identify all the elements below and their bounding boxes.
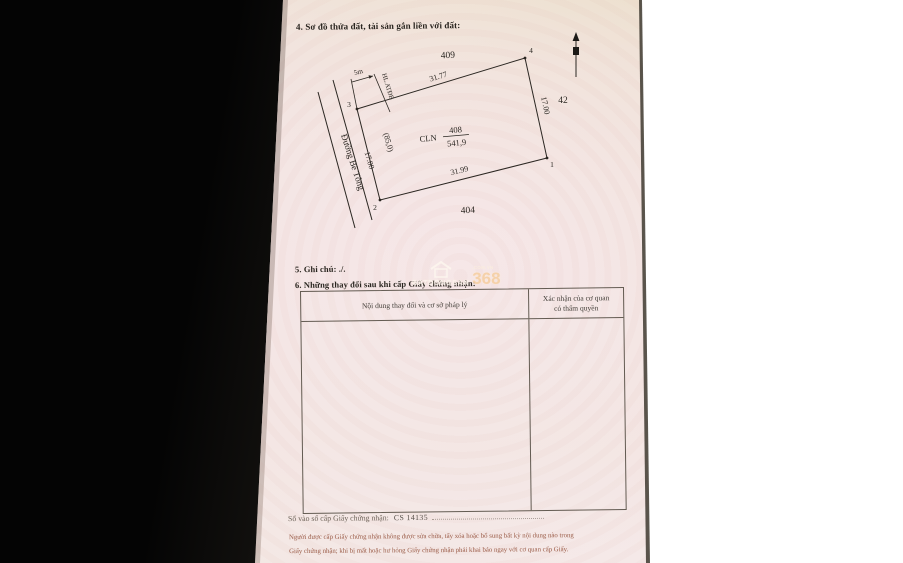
dim-arrowhead	[369, 75, 374, 79]
registry-number-label: Số vào sổ cấp Giấy chứng nhận:	[288, 513, 389, 523]
edge-left-corridor-length: (85,0)	[381, 132, 395, 153]
corner-label-1: 1	[550, 160, 554, 169]
corner-label-3: 3	[347, 100, 351, 109]
legal-notice: Người được cấp Giấy chứng nhận không đượ…	[289, 529, 615, 558]
dim-5m-label: 5m	[353, 67, 364, 77]
edge-top-length: 31.77	[428, 70, 448, 84]
changes-table-col1-header-cell: Nội dung thay đổi và cơ sở pháp lý	[301, 289, 529, 321]
watermark-logo: BATDONGSAN .COM.VN 368	[412, 253, 522, 287]
corner-point-1	[546, 157, 549, 160]
edge-right-length: 17.00	[539, 96, 552, 115]
registry-number-value: CS 14135	[394, 513, 428, 522]
hl-corridor-label: HL.ATĐB	[380, 73, 395, 102]
changes-table-col2-header-cell: Xác nhận của cơ quan có thẩm quyền	[529, 288, 623, 318]
legal-notice-line2: Giấy chứng nhận; khi bị mất hoặc hư hỏng…	[289, 542, 615, 558]
house-icon	[429, 261, 453, 278]
changes-table-header-row: Nội dung thay đổi và cơ sở pháp lý Xác n…	[301, 288, 623, 322]
corner-point-4	[524, 57, 527, 60]
edge-left-length: 17.00	[363, 150, 377, 170]
adjacent-plot-top: 409	[441, 51, 456, 62]
changes-table-col1-body-cell	[301, 319, 531, 513]
parcel-area: 541,9	[447, 137, 467, 149]
adjacent-plot-bottom: 404	[461, 206, 476, 217]
col1-header-label: Nội dung thay đổi và cơ sở pháp lý	[362, 300, 468, 310]
photo-dark-backdrop	[0, 0, 300, 563]
changes-table-body-row	[301, 318, 625, 513]
registry-dotted-line	[432, 511, 544, 520]
section5-heading: 5. Ghi chú: ./.	[295, 264, 346, 275]
plot-diagram: 409 42 404 Đường Bê Tông 3 4 1 2 31.77 3…	[300, 30, 600, 230]
parcel-id-group: CLN 408 541,9	[419, 124, 470, 151]
edge-bottom-length: 31.99	[450, 164, 470, 177]
dim-extension-line	[351, 79, 357, 109]
col2-header-label-line2: có thẩm quyền	[554, 303, 598, 313]
north-arrow-icon	[573, 32, 580, 77]
corner-label-4: 4	[529, 46, 533, 55]
watermark-brand-text: BATDONGSAN	[412, 278, 469, 287]
col2-header-label-line1: Xác nhận của cơ quan	[543, 293, 610, 303]
corner-point-2	[379, 199, 382, 202]
changes-table: Nội dung thay đổi và cơ sở pháp lý Xác n…	[300, 287, 627, 514]
parcel-landuse-code: CLN	[419, 132, 437, 143]
corner-label-2: 2	[373, 203, 377, 212]
watermark-number-text: 368	[472, 270, 500, 287]
adjacent-plot-right: 42	[558, 96, 568, 106]
changes-table-col2-body-cell	[529, 318, 625, 510]
parcel-number: 408	[449, 124, 463, 135]
photo-of-certificate: 4. Sơ đồ thửa đất, tài sản gắn liền với …	[0, 0, 903, 563]
